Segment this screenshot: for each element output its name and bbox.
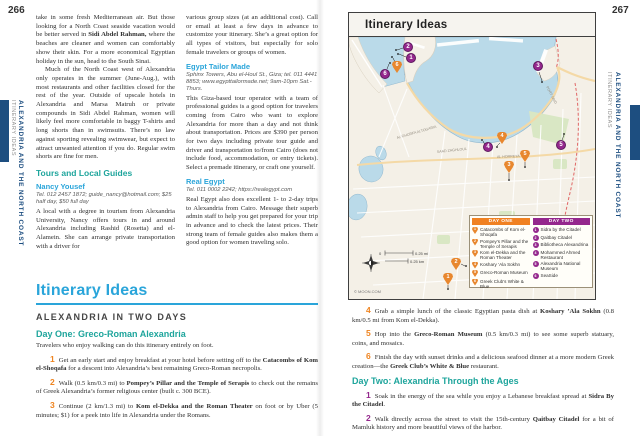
legend-item: 5Greco-Roman Museum: [472, 270, 530, 277]
itinerary-title: Itinerary Ideas: [36, 282, 318, 300]
paragraph: Real Egypt also does excellent 1- to 2-d…: [186, 196, 318, 248]
legend-item: 4Koshary ’Ala Sokhn: [472, 262, 530, 269]
step-number: 1: [50, 354, 55, 364]
legend-pin-icon: 3: [472, 250, 478, 257]
legend-circle-icon: 1: [533, 227, 539, 233]
listing-contact: Tel. 011 0002 2242; https://realegypt.co…: [186, 187, 318, 194]
legend-pin-icon: 4: [472, 262, 478, 269]
legend-item: 1Sidra by the Citadel: [533, 227, 591, 233]
legend-label: Greco-Roman Museum: [480, 270, 528, 277]
page-number-left: 266: [8, 5, 25, 16]
legend-day-one-column: DAY ONE 1Catacombs of Kom el-Shoqafa 2Po…: [472, 218, 530, 285]
chapter-tab-right: [630, 105, 640, 160]
legend-day-two-header: DAY TWO: [533, 218, 591, 225]
legend-day-two-column: DAY TWO 1Sidra by the Citadel 2Qaitbay C…: [533, 218, 591, 285]
step-venue: Greek Club’s White & Blue: [390, 363, 469, 370]
legend-label: SeaSide: [541, 273, 558, 279]
sidebar-section-label-right: ITINERARY IDEAS: [606, 72, 612, 128]
legend-circle-icon: 2: [533, 235, 539, 241]
page-number-right: 267: [612, 5, 629, 16]
legend-item: 3Kom el-Dekka and the Roman Theater: [472, 250, 530, 260]
step-number: 6: [366, 351, 371, 361]
itinerary-step: 3Continue (2 km/1.3 mi) to Kom el-Dekka …: [36, 400, 318, 420]
legend-item: 6SeaSide: [533, 273, 591, 279]
step-text: Soak in the energy of the sea while you …: [375, 393, 589, 400]
legend-item: 2Qaitbay Citadel: [533, 235, 591, 241]
scale-mi-label: 0.25 mi: [415, 251, 428, 256]
legend-label: Koshary ’Ala Sokhn: [480, 262, 520, 269]
legend-item: 5Alexandria National Museum: [533, 261, 591, 271]
paragraph: Much of the North Coast west of Alexandr…: [36, 66, 175, 162]
itinerary-step: 1Soak in the energy of the sea while you…: [352, 390, 614, 410]
section-heading-tours: Tours and Local Guides: [36, 168, 175, 178]
itinerary-step: 5Hop into the Greco-Roman Museum (0.5 km…: [352, 328, 614, 348]
map-marker-day2-qaitbay: 2: [403, 42, 413, 52]
step-text: Walk (0.5 km/0.3 mi) to: [59, 380, 127, 387]
itinerary-section: Itinerary Ideas ALEXANDRIA IN TWO DAYS D…: [36, 282, 318, 423]
step-number: 2: [366, 413, 371, 423]
paragraph: This Giza-based tour operator with a tea…: [186, 95, 318, 173]
step-number: 1: [366, 390, 371, 400]
listing-contact: Tel. 012 2457 1872; guide_nancy@hotmail.…: [36, 192, 175, 206]
sidebar-chapter-label-right: ALEXANDRIA AND THE NORTH COAST: [614, 72, 621, 218]
legend-pin-icon: 5: [472, 270, 478, 277]
listing-contact: Sphinx Towers, Abu el-Houl St., Giza; te…: [186, 72, 318, 93]
sidebar-section-label-left: ITINERARY IDEAS: [10, 100, 16, 156]
legend-circle-icon: 3: [533, 242, 539, 248]
legend-item: 4Mohammed Ahmed Restaurant: [533, 250, 591, 260]
step-text: Hop into the: [375, 331, 414, 338]
legend-label: Catacombs of Kom el-Shoqafa: [480, 227, 530, 237]
paragraph: various group sizes (at an additional co…: [186, 14, 318, 58]
itinerary-step: 1Get an early start and enjoy breakfast …: [36, 354, 318, 374]
step-text: for a descent into Alexandria’s best rem…: [66, 365, 261, 372]
legend-pin-icon: 2: [472, 239, 478, 246]
street-label: AL HORREYA: [497, 154, 520, 159]
step-venue: Pompey’s Pillar and the Temple of Serapi…: [127, 380, 250, 387]
map-canvas: SAAD ZAGHLOUL AL GHORFA ALTOGARIA PORT S…: [349, 37, 595, 299]
legend-label: Mohammed Ahmed Restaurant: [541, 250, 591, 260]
step-text: .: [383, 401, 385, 408]
bold-term: Sidi Abdel Rahman,: [88, 31, 146, 38]
legend-circle-icon: 5: [533, 261, 539, 267]
map-marker-day2-mohammed-ahmed: 4: [483, 142, 493, 152]
legend-item: 2Pompey’s Pillar and the Temple of Serap…: [472, 239, 530, 249]
legend-label: Kom el-Dekka and the Roman Theater: [480, 250, 530, 260]
itinerary-subtitle: ALEXANDRIA IN TWO DAYS: [36, 312, 318, 323]
itinerary-step: 2Walk directly across the street to visi…: [352, 413, 614, 433]
page-gutter: [316, 0, 324, 436]
step-number: 5: [366, 328, 371, 338]
legend-label: Qaitbay Citadel: [541, 235, 572, 241]
day-one-intro: Travelers who enjoy walking can do this …: [36, 342, 318, 351]
paragraph: A local with a degree in tourism from Al…: [36, 208, 175, 252]
legend-pin-icon: 6: [472, 279, 478, 286]
step-number: 4: [366, 305, 371, 315]
itinerary-step: 6Finish the day with sunset drinks and a…: [352, 351, 614, 371]
step-text: Walk directly across the street to visit…: [375, 416, 533, 423]
legend-label: Pompey’s Pillar and the Temple of Serapi…: [480, 239, 530, 249]
listing-name-real-egypt: Real Egypt: [186, 177, 318, 186]
right-page-itinerary: 4Grab a simple lunch of the classic Egyp…: [352, 305, 614, 436]
chapter-tab-left: [0, 100, 9, 162]
day-two-heading: Day Two: Alexandria Through the Ages: [352, 376, 614, 387]
legend-pin-icon: 1: [472, 227, 478, 234]
legend-item: 6Greek Club’s White & Blue: [472, 279, 530, 289]
legend-label: Alexandria National Museum: [541, 261, 591, 271]
map-title: Itinerary Ideas: [349, 13, 595, 37]
legend-item: 3Bibliotheca Alexandrina: [533, 242, 591, 248]
step-venue: Greco-Roman Museum: [414, 331, 482, 338]
legend-day-one-header: DAY ONE: [472, 218, 530, 225]
day-one-heading: Day One: Greco-Roman Alexandria: [36, 329, 318, 340]
step-number: 3: [50, 400, 55, 410]
step-text: Grab a simple lunch of the classic Egypt…: [375, 308, 540, 315]
listing-name-nancy-yousef: Nancy Yousef: [36, 182, 175, 191]
step-venue: Kom el-Dekka and the Roman Theater: [136, 403, 253, 410]
legend-label: Greek Club’s White & Blue: [480, 279, 530, 289]
map-legend: DAY ONE 1Catacombs of Kom el-Shoqafa 2Po…: [469, 215, 593, 288]
legend-label: Sidra by the Citadel: [541, 227, 581, 233]
map-marker-day2-national-museum: 5: [556, 140, 566, 150]
step-venue: Koshary ’Ala Sokhn: [540, 308, 601, 315]
legend-circle-icon: 6: [533, 273, 539, 279]
itinerary-map: Itinerary Ideas: [348, 12, 596, 300]
left-column-1: take in some fresh Mediterranean air. Bu…: [36, 14, 175, 251]
map-marker-day2-sidra: 1: [406, 53, 416, 63]
step-venue: Qaitbay Citadel: [533, 416, 580, 423]
map-credit: © MOON.COM: [354, 289, 381, 294]
legend-circle-icon: 4: [533, 250, 539, 256]
step-text: Get an early start and enjoy breakfast a…: [59, 357, 263, 364]
itinerary-step: 2Walk (0.5 km/0.3 mi) to Pompey’s Pillar…: [36, 377, 318, 397]
book-spread: 266 ITINERARY IDEAS ALEXANDRIA AND THE N…: [0, 0, 640, 436]
step-number: 2: [50, 377, 55, 387]
title-rule: [36, 303, 318, 305]
step-text: restaurant.: [469, 363, 499, 370]
map-marker-day2-bibliotheca: 3: [533, 61, 543, 71]
paragraph: take in some fresh Mediterranean air. Bu…: [36, 14, 175, 66]
scale-km-label: 0.25 km: [410, 259, 425, 264]
left-column-2: various group sizes (at an additional co…: [186, 14, 318, 248]
step-text: Continue (2 km/1.3 mi) to: [59, 403, 136, 410]
legend-item: 1Catacombs of Kom el-Shoqafa: [472, 227, 530, 237]
legend-label: Bibliotheca Alexandrina: [541, 242, 589, 248]
sidebar-chapter-label-left: ALEXANDRIA AND THE NORTH COAST: [17, 100, 24, 246]
map-marker-day2-seaside: 6: [380, 69, 390, 79]
itinerary-step: 4Grab a simple lunch of the classic Egyp…: [352, 305, 614, 325]
listing-name-egypt-tailor-made: Egypt Tailor Made: [186, 62, 318, 71]
